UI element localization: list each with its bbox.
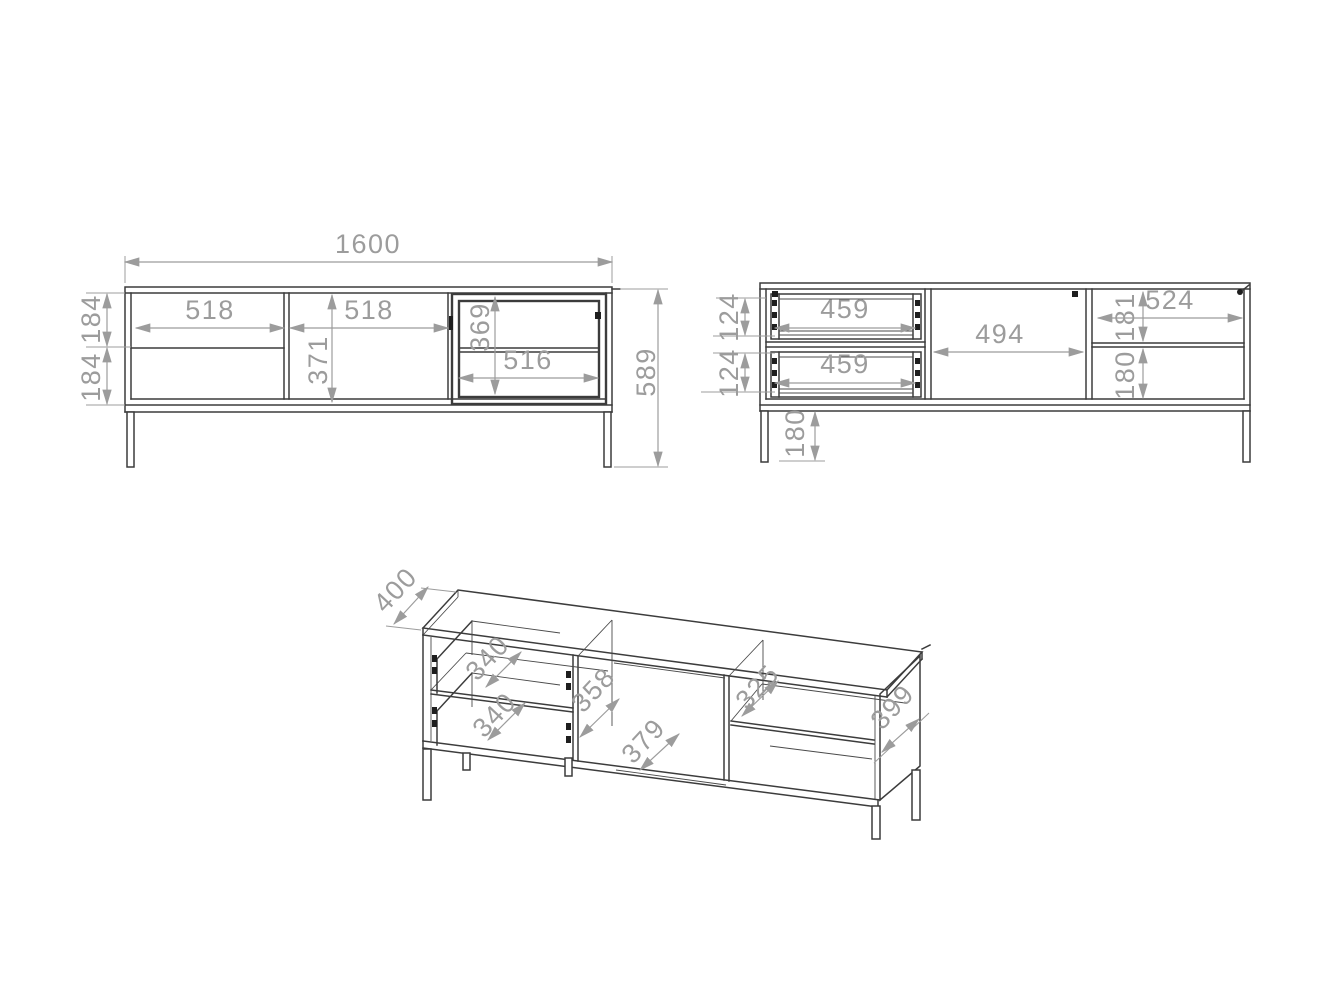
glass-door-hinge [595,312,601,319]
dim-leg-height: 180 [780,408,810,458]
dim-left-section-width: 518 [185,295,235,325]
dim-lower-drawer-width: 459 [820,349,870,379]
back-view-dimensions: 459 459 124 124 494 524 181 180 180 [701,285,1242,461]
dim-upper-drawer-front-height: 184 [76,294,106,344]
wall-bracket-left [772,291,778,297]
dim-right-lower-height: 180 [1110,350,1140,400]
back-left-leg [761,411,768,462]
front-view: 1600 518 518 371 369 516 184 184 589 [76,229,668,467]
dim-middle-door-width: 518 [344,295,394,325]
dim-lower-drawer-front-height: 184 [76,352,106,402]
dim-bottom-panel-depth: 379 [616,713,672,770]
dim-side-panel-depth: 399 [865,679,921,736]
wall-bracket-middle [1072,291,1078,297]
front-right-leg [604,412,611,467]
dim-upper-drawer-height: 124 [714,292,744,342]
dim-total-height: 589 [631,347,661,397]
dim-middle-compartment-depth: 358 [566,662,622,719]
dim-glass-door-width: 516 [503,345,553,375]
sliding-door-handle [449,316,453,330]
dim-glass-door-height: 369 [465,302,495,352]
dim-middle-door-height: 371 [303,335,333,385]
front-left-leg [127,412,134,467]
iso-legs [423,749,920,839]
dim-right-opening-width: 524 [1145,285,1195,315]
dim-upper-drawer-width: 459 [820,294,870,324]
dim-total-depth: 400 [368,562,424,619]
back-right-leg [1243,411,1250,462]
dim-right-upper-height: 181 [1110,292,1140,342]
back-view: 459 459 124 124 494 524 181 180 180 [701,283,1250,462]
iso-view: 400 340 340 358 379 325 399 [368,562,930,839]
furniture-technical-drawing: 1600 518 518 371 369 516 184 184 589 [0,0,1341,1005]
dim-total-width: 1600 [335,229,401,259]
dim-lower-drawer-height: 124 [714,348,744,398]
dim-middle-opening-width: 494 [975,319,1025,349]
